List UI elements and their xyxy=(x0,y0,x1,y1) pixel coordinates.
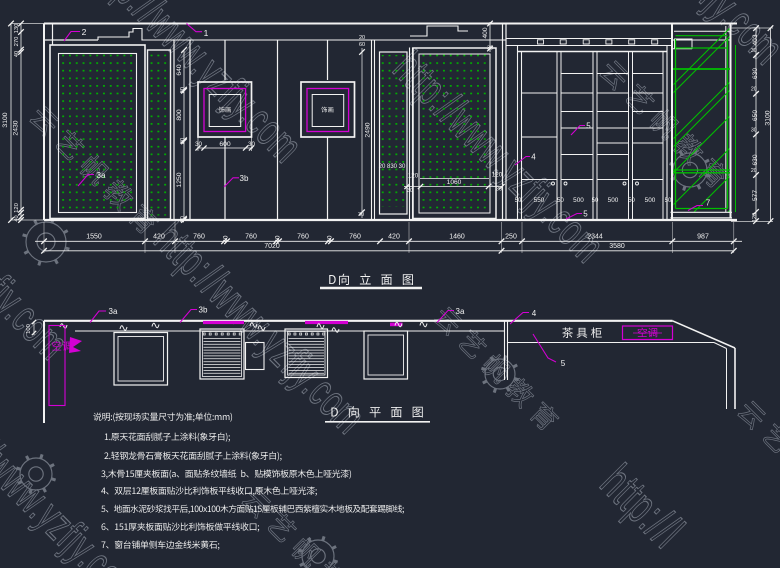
svg-text:2344: 2344 xyxy=(587,234,603,241)
svg-text:3a: 3a xyxy=(109,307,118,316)
svg-text:20: 20 xyxy=(180,216,186,222)
svg-text:2: 2 xyxy=(82,27,87,37)
svg-text:30: 30 xyxy=(751,128,757,134)
svg-text:100: 100 xyxy=(26,324,32,334)
svg-text:40: 40 xyxy=(223,235,230,242)
svg-text:3b: 3b xyxy=(199,306,208,315)
svg-text:420: 420 xyxy=(153,234,165,241)
svg-text:270: 270 xyxy=(14,36,20,47)
svg-text:400: 400 xyxy=(482,27,489,38)
svg-text:5: 5 xyxy=(586,122,591,131)
svg-text:30: 30 xyxy=(407,188,413,194)
svg-text:30: 30 xyxy=(248,141,256,148)
svg-text:3100: 3100 xyxy=(2,112,9,127)
svg-text:3100: 3100 xyxy=(764,110,771,125)
svg-text:577: 577 xyxy=(752,190,759,201)
svg-text:500: 500 xyxy=(573,197,584,204)
svg-text:3a: 3a xyxy=(97,171,106,180)
svg-text:30: 30 xyxy=(195,141,203,148)
svg-text:2430: 2430 xyxy=(13,120,20,135)
svg-text:987: 987 xyxy=(697,234,709,241)
svg-text:3580: 3580 xyxy=(609,243,625,250)
svg-text:50: 50 xyxy=(515,198,522,204)
svg-text:760: 760 xyxy=(297,234,309,241)
svg-text:20: 20 xyxy=(751,87,757,93)
svg-text:5: 5 xyxy=(583,210,588,219)
svg-text:4: 4 xyxy=(531,153,536,162)
svg-text:500: 500 xyxy=(645,197,656,204)
svg-text:40: 40 xyxy=(275,235,282,242)
svg-text:800: 800 xyxy=(176,109,183,121)
svg-text:60: 60 xyxy=(359,42,365,48)
svg-text:550: 550 xyxy=(534,197,545,204)
svg-text:1060: 1060 xyxy=(447,179,462,186)
svg-text:50: 50 xyxy=(592,198,599,204)
svg-text:50: 50 xyxy=(665,198,672,204)
svg-text:30: 30 xyxy=(358,212,364,218)
svg-text:403: 403 xyxy=(752,34,759,45)
svg-text:1250: 1250 xyxy=(176,172,183,187)
svg-text:20: 20 xyxy=(359,35,365,41)
svg-text:4: 4 xyxy=(532,309,537,318)
svg-text:630: 630 xyxy=(752,154,759,165)
svg-text:120: 120 xyxy=(752,213,758,223)
svg-text:3b: 3b xyxy=(240,174,249,183)
svg-text:30: 30 xyxy=(487,46,493,52)
svg-text:1: 1 xyxy=(204,28,209,38)
svg-text:500: 500 xyxy=(608,197,619,204)
svg-text:50: 50 xyxy=(628,198,635,204)
svg-text:7020: 7020 xyxy=(264,243,280,250)
svg-text:40: 40 xyxy=(14,51,20,57)
svg-text:20: 20 xyxy=(180,138,186,144)
svg-text:20: 20 xyxy=(751,168,757,174)
svg-text:7: 7 xyxy=(706,199,711,208)
svg-text:30: 30 xyxy=(496,187,502,193)
svg-text:760: 760 xyxy=(193,234,205,241)
svg-text:120: 120 xyxy=(408,173,419,180)
svg-text:650: 650 xyxy=(752,110,759,121)
svg-text:120: 120 xyxy=(492,172,503,179)
svg-text:1550: 1550 xyxy=(86,234,102,241)
svg-text:5: 5 xyxy=(561,359,566,368)
svg-text:250: 250 xyxy=(505,234,517,241)
svg-text:420: 420 xyxy=(388,234,400,241)
svg-text:630: 630 xyxy=(752,68,759,79)
svg-text:2490: 2490 xyxy=(365,122,372,137)
svg-text:760: 760 xyxy=(245,234,257,241)
svg-text:40: 40 xyxy=(327,235,334,242)
svg-text:760: 760 xyxy=(349,234,361,241)
svg-text:20: 20 xyxy=(180,87,186,93)
svg-text:30: 30 xyxy=(751,48,757,54)
svg-text:3a: 3a xyxy=(456,307,465,316)
svg-text:130: 130 xyxy=(14,23,20,34)
svg-text:40: 40 xyxy=(14,215,20,221)
svg-text:120: 120 xyxy=(14,202,20,213)
svg-text:50: 50 xyxy=(557,198,564,204)
svg-text:600: 600 xyxy=(219,141,231,148)
svg-text:640: 640 xyxy=(176,64,183,76)
svg-text:1460: 1460 xyxy=(449,234,465,241)
